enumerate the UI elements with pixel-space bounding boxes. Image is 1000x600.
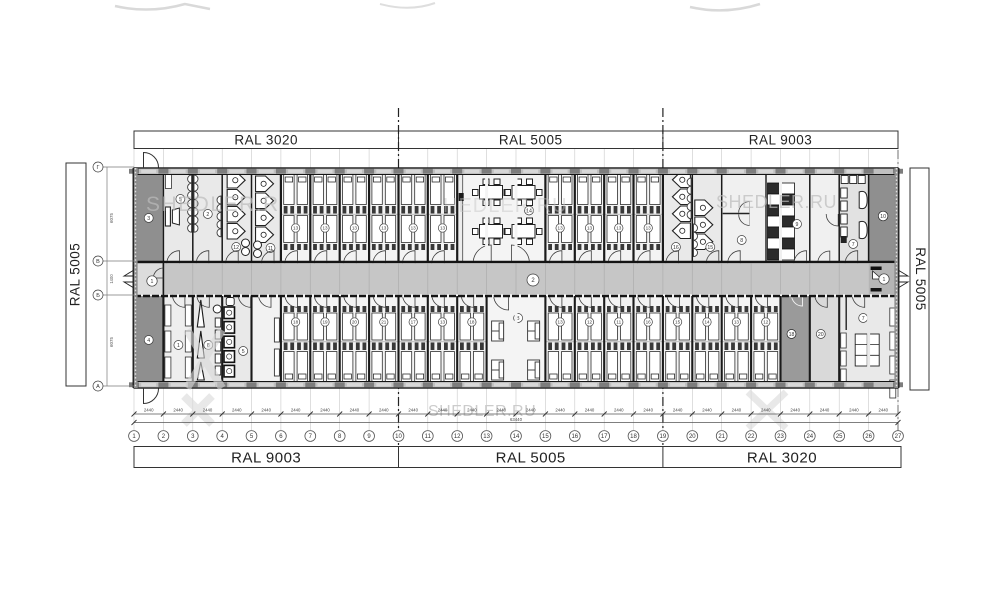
- svg-text:1: 1: [151, 279, 154, 285]
- svg-text:HEDLER.RU: HEDLER.RU: [443, 195, 568, 217]
- svg-text:14: 14: [513, 434, 520, 440]
- svg-text:13: 13: [646, 226, 652, 231]
- svg-text:1: 1: [883, 277, 886, 283]
- svg-text:2440: 2440: [849, 408, 859, 413]
- svg-text:2440: 2440: [585, 408, 595, 413]
- svg-text:13: 13: [322, 226, 328, 231]
- svg-text:17: 17: [411, 320, 417, 325]
- svg-text:13: 13: [587, 226, 593, 231]
- svg-text:2440: 2440: [291, 408, 301, 413]
- svg-text:8: 8: [740, 238, 743, 244]
- svg-text:SHEDLER.RU: SHEDLER.RU: [716, 192, 837, 212]
- svg-text:24: 24: [806, 434, 813, 440]
- svg-text:16: 16: [646, 320, 652, 325]
- svg-text:RAL 5005: RAL 5005: [499, 133, 563, 148]
- svg-text:13: 13: [483, 434, 490, 440]
- svg-text:19: 19: [660, 434, 667, 440]
- svg-text:18: 18: [630, 434, 637, 440]
- svg-text:Б: Б: [96, 293, 100, 299]
- svg-text:2440: 2440: [732, 408, 742, 413]
- svg-text:1400: 1400: [109, 274, 114, 284]
- svg-text:2440: 2440: [144, 408, 154, 413]
- svg-text:12: 12: [233, 245, 239, 251]
- svg-text:9: 9: [796, 222, 799, 228]
- svg-text:2440: 2440: [350, 408, 360, 413]
- svg-text:Г: Г: [97, 165, 100, 171]
- svg-text:2440: 2440: [438, 408, 448, 413]
- svg-text:13: 13: [558, 320, 564, 325]
- svg-text:12: 12: [587, 320, 593, 325]
- svg-text:16: 16: [571, 434, 578, 440]
- svg-text:18: 18: [293, 320, 299, 325]
- svg-text:2440: 2440: [820, 408, 830, 413]
- svg-text:2440: 2440: [702, 408, 712, 413]
- svg-text:13: 13: [293, 226, 299, 231]
- svg-text:А: А: [96, 384, 100, 390]
- svg-text:18: 18: [469, 320, 475, 325]
- svg-text:11: 11: [616, 320, 621, 325]
- svg-text:2440: 2440: [320, 408, 330, 413]
- svg-text:25: 25: [836, 434, 843, 440]
- svg-text:20: 20: [689, 434, 696, 440]
- svg-text:15: 15: [675, 320, 681, 325]
- svg-text:2440: 2440: [879, 408, 889, 413]
- svg-text:4: 4: [147, 338, 150, 344]
- svg-text:1: 1: [177, 343, 180, 349]
- svg-text:2440: 2440: [643, 408, 653, 413]
- svg-text:2440: 2440: [203, 408, 213, 413]
- svg-text:2440: 2440: [467, 408, 477, 413]
- svg-text:2440: 2440: [379, 408, 389, 413]
- svg-text:10: 10: [880, 214, 886, 220]
- svg-text:10: 10: [395, 434, 402, 440]
- svg-text:6075: 6075: [109, 336, 114, 347]
- svg-text:21: 21: [381, 320, 387, 325]
- svg-text:5: 5: [242, 349, 245, 355]
- svg-text:13: 13: [440, 226, 446, 231]
- svg-text:2440: 2440: [614, 408, 624, 413]
- svg-text:23: 23: [777, 434, 784, 440]
- svg-text:2440: 2440: [761, 408, 771, 413]
- svg-text:7: 7: [852, 242, 855, 248]
- svg-text:15: 15: [542, 434, 549, 440]
- svg-text:2440: 2440: [173, 408, 183, 413]
- svg-text:2440: 2440: [673, 408, 683, 413]
- svg-text:RAL 5005: RAL 5005: [913, 247, 928, 311]
- svg-text:12: 12: [454, 434, 461, 440]
- svg-text:18: 18: [789, 332, 795, 338]
- svg-text:6075: 6075: [109, 212, 114, 223]
- svg-text:13: 13: [734, 320, 740, 325]
- svg-text:12: 12: [763, 320, 769, 325]
- svg-text:RAL 9003: RAL 9003: [749, 133, 813, 148]
- svg-text:20: 20: [352, 320, 358, 325]
- svg-text:2440: 2440: [408, 408, 418, 413]
- svg-text:13: 13: [381, 226, 387, 231]
- svg-text:17: 17: [601, 434, 608, 440]
- svg-text:21: 21: [718, 434, 725, 440]
- svg-text:3: 3: [147, 216, 150, 222]
- svg-text:15: 15: [707, 245, 713, 251]
- svg-text:13: 13: [440, 320, 446, 325]
- svg-text:16: 16: [673, 245, 679, 251]
- svg-text:7: 7: [862, 316, 865, 322]
- svg-text:SHEDLER.R: SHEDLER.R: [146, 193, 280, 216]
- svg-text:26: 26: [865, 434, 872, 440]
- svg-text:В: В: [96, 259, 100, 265]
- svg-text:63440: 63440: [510, 417, 523, 422]
- svg-text:13: 13: [411, 226, 417, 231]
- svg-text:13: 13: [352, 226, 358, 231]
- svg-text:11: 11: [425, 434, 432, 440]
- svg-text:13: 13: [616, 226, 622, 231]
- svg-text:RAL 3020: RAL 3020: [747, 450, 817, 467]
- svg-text:2440: 2440: [261, 408, 271, 413]
- svg-text:2440: 2440: [555, 408, 565, 413]
- svg-text:RAL 5005: RAL 5005: [68, 243, 83, 307]
- svg-text:14: 14: [704, 320, 710, 325]
- svg-text:2440: 2440: [526, 408, 536, 413]
- svg-text:19: 19: [322, 320, 328, 325]
- svg-text:22: 22: [748, 434, 755, 440]
- svg-text:RAL 5005: RAL 5005: [496, 450, 566, 467]
- svg-text:2440: 2440: [232, 408, 242, 413]
- svg-text:2440: 2440: [790, 408, 800, 413]
- svg-text:RAL 3020: RAL 3020: [234, 133, 298, 148]
- svg-text:2440: 2440: [497, 408, 507, 413]
- svg-text:27: 27: [895, 434, 902, 440]
- svg-text:RAL 9003: RAL 9003: [231, 450, 301, 467]
- svg-text:20: 20: [818, 332, 824, 338]
- svg-text:13: 13: [558, 226, 564, 231]
